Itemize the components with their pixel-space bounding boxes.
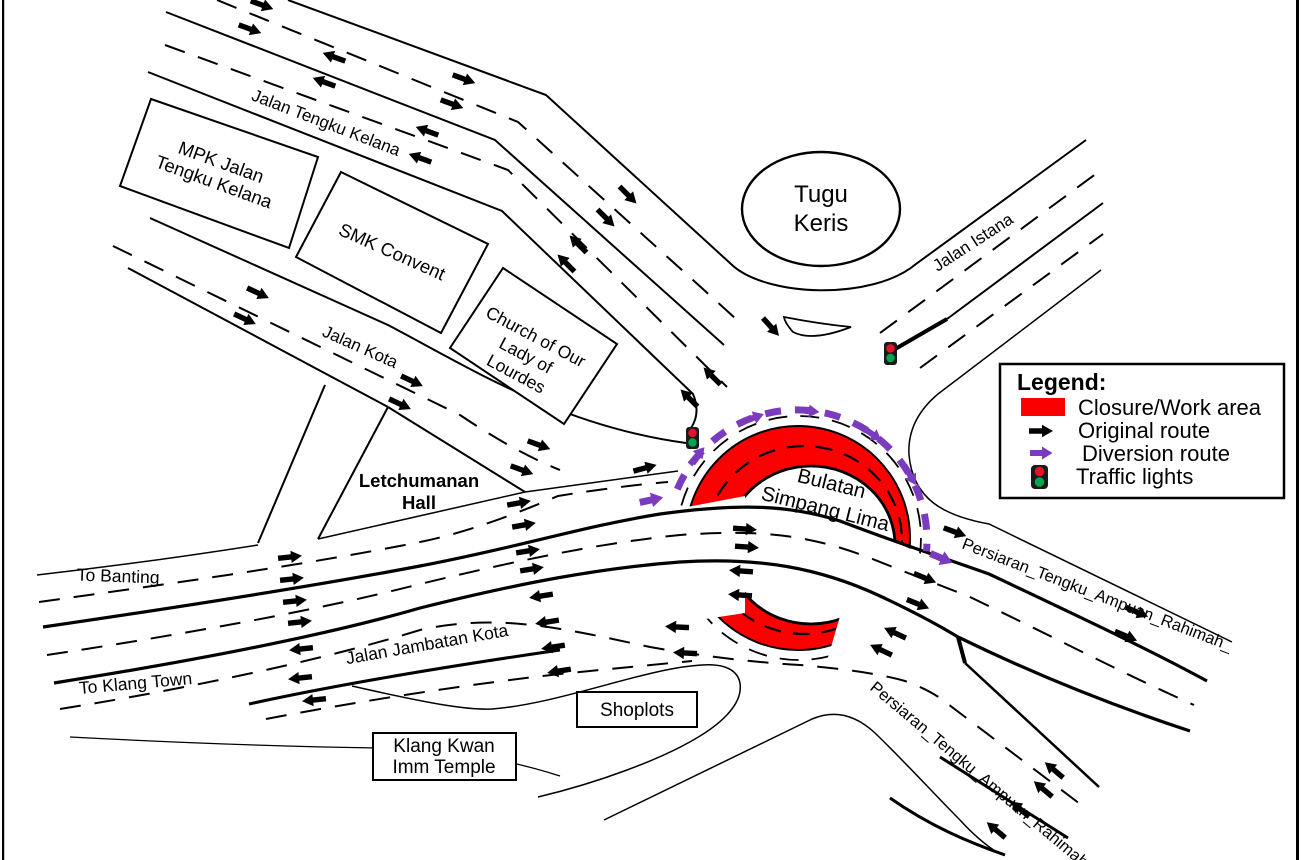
svg-text:To Banting: To Banting — [77, 565, 160, 588]
svg-text:Closure/Work area: Closure/Work area — [1078, 395, 1262, 420]
svg-text:Shoplots: Shoplots — [600, 700, 674, 721]
svg-text:Tugu: Tugu — [794, 181, 848, 208]
svg-text:Klang Kwan: Klang Kwan — [393, 736, 494, 757]
svg-text:Legend:: Legend: — [1017, 369, 1106, 395]
svg-text:Diversion route: Diversion route — [1082, 441, 1230, 466]
svg-text:Original route: Original route — [1078, 418, 1210, 443]
svg-text:Letchumanan: Letchumanan — [359, 470, 479, 491]
svg-text:Imm Temple: Imm Temple — [392, 757, 495, 778]
svg-text:Keris: Keris — [794, 210, 849, 237]
svg-text:Traffic lights: Traffic lights — [1076, 464, 1193, 489]
svg-text:Hall: Hall — [402, 492, 436, 513]
